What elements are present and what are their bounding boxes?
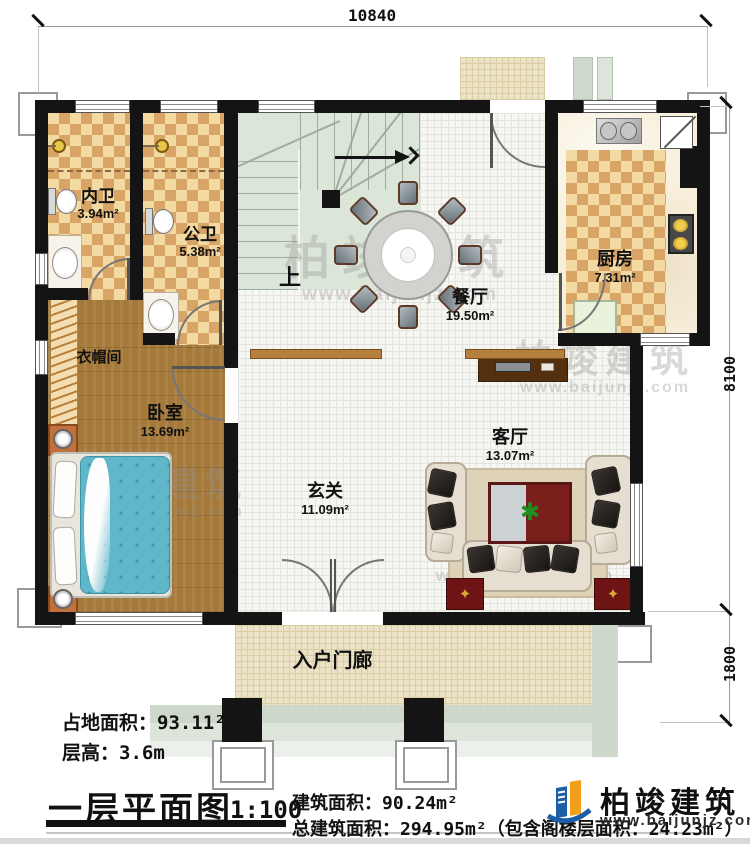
dim-label-right-lower: 1800: [721, 646, 739, 682]
room-area-inner-bath: 3.94m²: [60, 206, 136, 221]
wall: [383, 612, 645, 625]
extension-line: [700, 106, 729, 107]
wall: [224, 423, 238, 612]
extension-line: [660, 722, 729, 723]
door-leaf: [490, 113, 493, 168]
wall: [690, 333, 710, 346]
sofa-cushion: [591, 466, 622, 497]
stair-newel: [322, 190, 340, 208]
wall: [224, 345, 238, 368]
sofa-cushion: [427, 501, 457, 531]
dim-label-top: 10840: [348, 6, 396, 25]
dining-chair: [334, 245, 358, 265]
wall: [130, 100, 160, 113]
terrace-step: [597, 57, 613, 100]
wall: [48, 288, 88, 300]
window: [160, 100, 218, 113]
sofa-cushion: [591, 499, 621, 529]
divider-shelf: [465, 349, 565, 359]
stair-arrow-line: [335, 156, 395, 159]
extension-line: [707, 27, 708, 87]
room-area-entry-hall: 11.09m²: [275, 502, 375, 517]
column-pedestal: [403, 747, 449, 783]
dining-chair: [458, 245, 482, 265]
bed-pillow: [53, 460, 78, 518]
logo-icon: [543, 774, 595, 828]
logo-url: www.baijunjz.com: [600, 812, 750, 829]
terrace-floor: [460, 57, 545, 100]
shower-divider-dashed: [143, 170, 224, 172]
wall: [558, 333, 640, 346]
door-leaf: [330, 559, 332, 612]
dim-line-right: [729, 104, 730, 724]
bed-fold: [84, 458, 110, 592]
kitchen-sink-bowl: [600, 122, 617, 140]
window: [35, 253, 48, 285]
shower-divider-dashed: [48, 170, 130, 172]
door-leaf: [559, 273, 562, 331]
room-area-dining: 19.50m²: [420, 308, 520, 323]
room-label-porch: 入户门廊: [270, 650, 395, 672]
wall: [224, 113, 238, 345]
door-leaf: [219, 300, 222, 345]
sofa-cushion: [550, 544, 580, 574]
window: [640, 333, 690, 346]
wall: [630, 567, 643, 612]
dining-chair: [398, 181, 418, 205]
extension-line: [648, 611, 729, 612]
wall: [35, 375, 48, 612]
wall: [143, 333, 175, 345]
window: [75, 612, 203, 625]
room-label-cloakroom: 衣帽间: [64, 350, 134, 367]
wall: [630, 346, 643, 483]
coffee-table: ✱: [488, 482, 572, 544]
red-mat: ✦: [594, 578, 632, 610]
door-leaf: [172, 366, 225, 369]
kitchen-sink-bowl: [620, 122, 637, 140]
shower-icon: [143, 145, 159, 147]
sofa-cushion: [427, 468, 458, 499]
bed-pillow: [52, 526, 77, 585]
room-label-dining: 餐厅: [420, 288, 520, 308]
stove-burner: [673, 237, 688, 250]
window: [583, 100, 657, 113]
extension-line: [38, 27, 39, 93]
floor-plan-page: 10840 8100 1800: [0, 0, 750, 844]
sofa-cushion: [495, 545, 524, 574]
wall: [545, 100, 583, 113]
window: [35, 340, 48, 375]
porch-column: [222, 698, 262, 742]
wall: [35, 285, 48, 340]
window: [258, 100, 315, 113]
toilet-icon: [145, 208, 153, 235]
tv-icon: [495, 362, 531, 372]
toilet-icon: [48, 188, 56, 215]
wall: [35, 100, 48, 253]
plant-icon: ✱: [520, 501, 540, 525]
door-leaf: [334, 559, 336, 612]
building-area-text: 建筑面积：90.24m²: [292, 789, 458, 815]
sofa-cushion: [523, 545, 552, 574]
wall: [203, 612, 282, 625]
dim-line-top: [38, 26, 708, 27]
land-area-text: 占地面积：93.11²: [62, 708, 226, 735]
nightstand-lamp: [53, 589, 73, 609]
window: [75, 100, 130, 113]
page-bottom-strip: [0, 838, 750, 844]
dining-chair: [398, 305, 418, 329]
window: [630, 483, 643, 567]
room-label-kitchen: 厨房: [570, 250, 660, 270]
sofa-cushion: [430, 532, 455, 555]
red-mat: ✦: [446, 578, 484, 610]
logo-icon-svg: [543, 774, 595, 828]
stair-up-label: 上: [272, 266, 308, 290]
room-label-entry-hall: 玄关: [280, 482, 370, 502]
porch-column: [404, 698, 444, 742]
tv-remote: [541, 363, 554, 371]
sink-icon: [52, 247, 78, 279]
sink-icon: [148, 299, 174, 331]
dim-label-right-upper: 8100: [721, 356, 739, 392]
stove-burner: [673, 219, 688, 232]
door-leaf: [127, 258, 130, 300]
wall: [697, 100, 710, 346]
divider-shelf: [250, 349, 382, 359]
dining-table-hub: [400, 247, 416, 263]
wall: [35, 612, 75, 625]
floor-height-text: 层高：3.6m: [62, 738, 165, 765]
wall: [218, 100, 258, 113]
room-label-living: 客厅: [465, 428, 555, 448]
room-area-bedroom: 13.69m²: [120, 424, 210, 439]
sofa-cushion: [594, 532, 619, 555]
wall: [130, 113, 143, 300]
column-pedestal: [220, 747, 266, 783]
porch-side-step: [592, 625, 618, 757]
dim-tick: [719, 714, 732, 727]
room-area-living: 13.07m²: [465, 448, 555, 463]
terrace-step: [573, 57, 593, 100]
wall: [545, 113, 558, 273]
nightstand-lamp: [53, 429, 73, 449]
wall: [315, 100, 490, 113]
room-label-inner-bath: 内卫: [60, 188, 136, 207]
sofa-cushion: [466, 544, 495, 573]
